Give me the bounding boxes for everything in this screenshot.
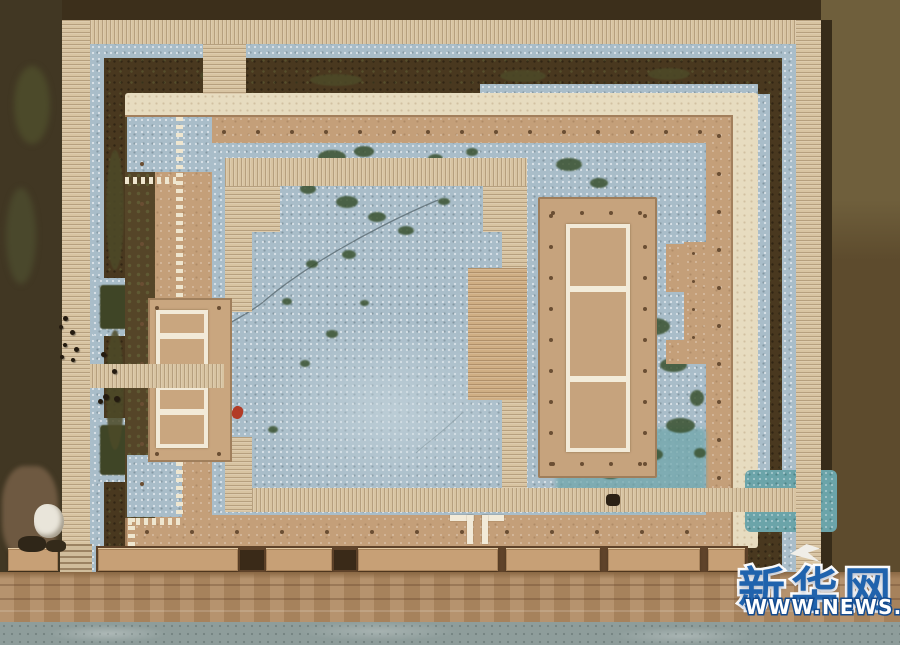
vegetation-patch <box>14 66 50 144</box>
foundation-dotted-line <box>128 518 182 525</box>
vegetation-patch <box>6 188 36 284</box>
gravel-pocket <box>127 117 212 172</box>
foundation-rung <box>160 333 204 339</box>
inner-boardwalk-west <box>225 186 252 312</box>
foundation-rung <box>160 409 204 415</box>
outer-boardwalk-west <box>62 20 90 572</box>
foundation-mark <box>467 515 473 544</box>
outer-boardwalk-east <box>796 20 821 572</box>
west-entrance-boardwalk <box>88 364 224 388</box>
field-east <box>821 0 900 645</box>
notched-wall-footing <box>666 340 684 364</box>
foundation-outline <box>156 386 208 448</box>
foundation-dotted-line <box>176 462 183 518</box>
equipment-pile <box>18 536 46 552</box>
xinhua-watermark-url: WWW.NEWS.CN <box>745 595 900 619</box>
south-wall-trench <box>96 546 748 574</box>
gravel-pocket <box>127 455 182 517</box>
equipment-pile <box>46 540 66 552</box>
north-connector-boardwalk <box>203 44 246 94</box>
inner-boardwalk-corner <box>252 186 280 232</box>
foundation-dotted-line <box>128 518 135 546</box>
white-tent <box>34 504 64 538</box>
gravel-strip-north <box>90 44 796 58</box>
boardwalk-object <box>606 494 620 506</box>
outer-boardwalk-north <box>86 20 797 44</box>
south-boardwalk <box>252 488 798 512</box>
foundation-mark <box>482 515 488 544</box>
notched-wall-footing <box>684 242 707 364</box>
inner-boardwalk-north <box>225 158 527 186</box>
aerial-photo: 新华网 WWW.NEWS.CN <box>0 0 900 645</box>
boardwalk-viewing-deck <box>468 268 527 400</box>
inner-boardwalk-corner <box>483 186 502 232</box>
hall-foundation-outline <box>566 224 630 452</box>
concrete-strip <box>0 622 900 645</box>
notched-wall-footing <box>666 244 684 292</box>
foundation-outline <box>156 310 208 372</box>
foundation-rung <box>570 286 626 292</box>
foundation-dotted-line <box>125 177 176 184</box>
foundation-rung <box>570 376 626 382</box>
wall-gap-pit <box>334 550 356 570</box>
gravel-edge <box>756 94 770 474</box>
foundation-dotted-line <box>176 117 183 298</box>
wall-gap-pit <box>240 550 264 570</box>
